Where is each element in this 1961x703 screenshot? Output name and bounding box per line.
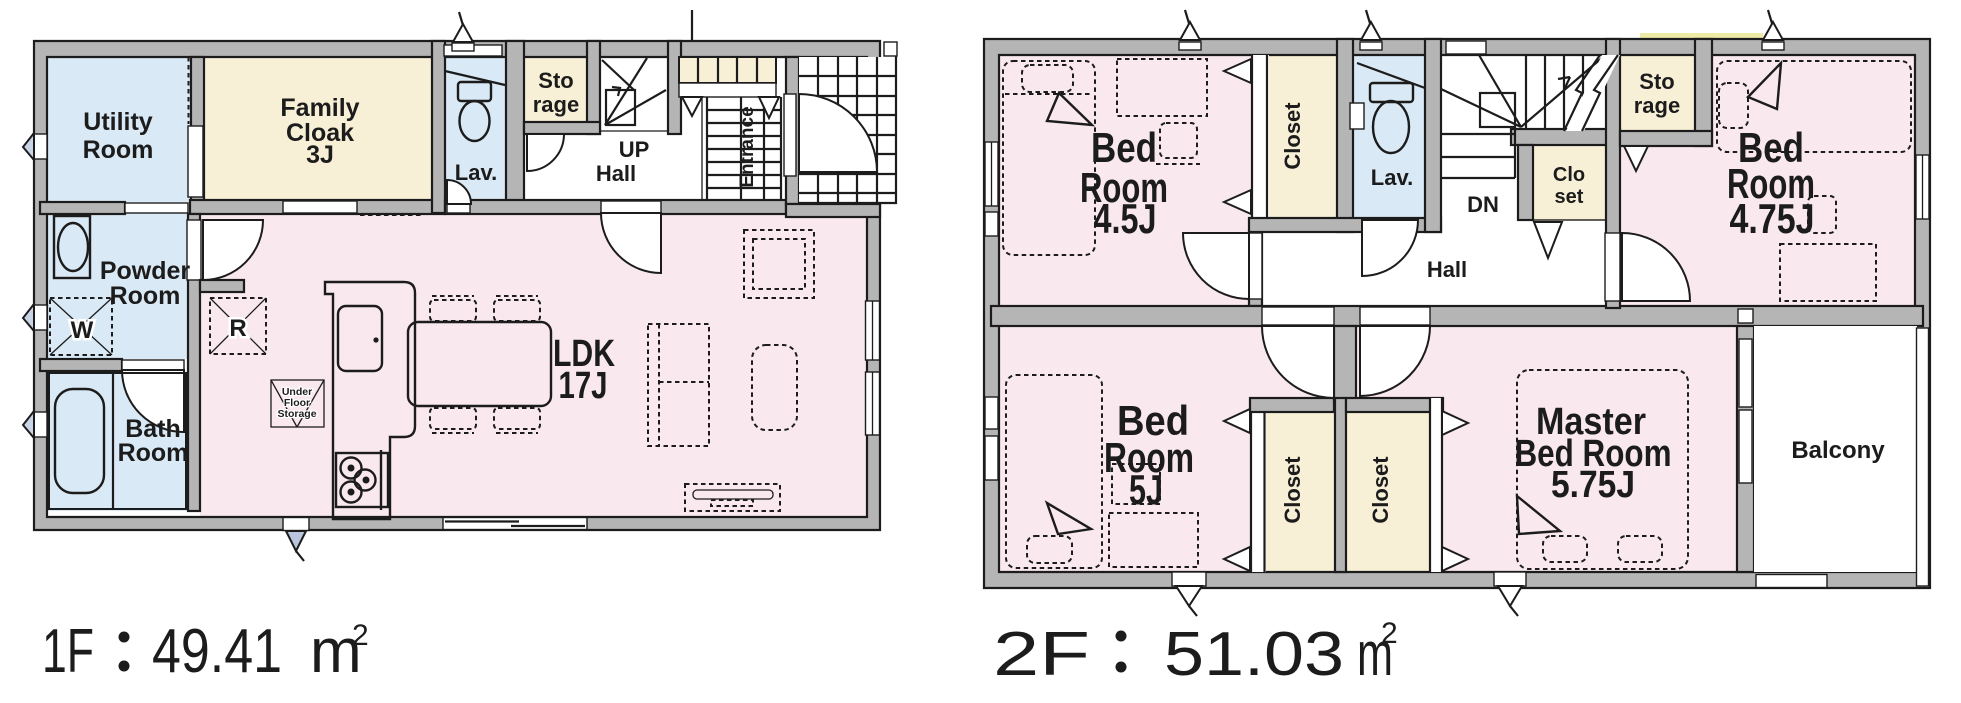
svg-text:Entrance: Entrance xyxy=(737,106,758,187)
svg-text:Storage: Storage xyxy=(277,408,316,420)
svg-text:Family: Family xyxy=(280,94,359,122)
svg-text:5J: 5J xyxy=(1129,466,1163,513)
svg-text:set: set xyxy=(1555,186,1584,208)
svg-text:Utility: Utility xyxy=(83,108,153,136)
svg-text:rage: rage xyxy=(1634,93,1680,118)
svg-text:DN: DN xyxy=(1467,192,1499,217)
svg-text:Room: Room xyxy=(83,136,154,164)
svg-text:51.03: 51.03 xyxy=(1164,620,1344,689)
svg-text:4.75J: 4.75J xyxy=(1730,195,1815,242)
svg-text:Sto: Sto xyxy=(1639,69,1674,94)
svg-text:W: W xyxy=(71,317,94,344)
svg-text:UP: UP xyxy=(619,137,650,162)
svg-text:Closet: Closet xyxy=(1280,456,1305,524)
svg-text:2: 2 xyxy=(352,619,369,652)
svg-text:2: 2 xyxy=(1381,617,1398,650)
svg-text:49.41: 49.41 xyxy=(152,617,282,686)
svg-text:Closet: Closet xyxy=(1368,456,1393,524)
svg-text:Balcony: Balcony xyxy=(1791,437,1885,464)
svg-text:Room: Room xyxy=(110,282,181,310)
svg-text:Room: Room xyxy=(118,439,189,467)
svg-text:1F: 1F xyxy=(42,617,94,686)
svg-text:17J: 17J xyxy=(559,365,608,407)
svg-text:Lav.: Lav. xyxy=(455,160,497,185)
svg-text:4.5J: 4.5J xyxy=(1094,195,1157,242)
svg-text:Closet: Closet xyxy=(1280,102,1305,170)
svg-text:2F: 2F xyxy=(993,620,1090,689)
svg-text:Sto: Sto xyxy=(538,68,573,93)
svg-text:Hall: Hall xyxy=(1427,257,1467,282)
svg-text:3J: 3J xyxy=(306,141,334,169)
svg-text:R: R xyxy=(229,315,246,342)
svg-text:Lav.: Lav. xyxy=(1371,165,1413,190)
svg-text:5.75J: 5.75J xyxy=(1551,464,1635,506)
svg-text:Clo: Clo xyxy=(1553,164,1585,186)
svg-text:Powder: Powder xyxy=(100,257,191,285)
svg-text:rage: rage xyxy=(533,92,579,117)
svg-text:Hall: Hall xyxy=(596,161,636,186)
